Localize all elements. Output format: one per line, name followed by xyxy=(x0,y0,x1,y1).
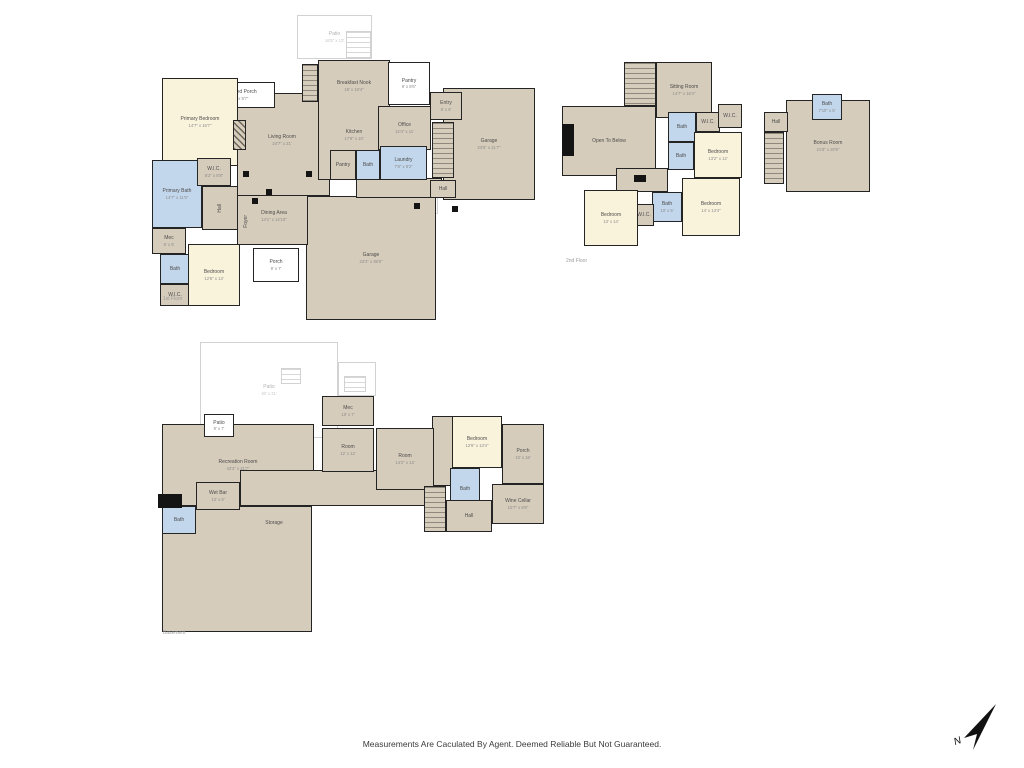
room-dimensions: 9' x 7' xyxy=(214,426,225,431)
room-hall: Hall xyxy=(446,500,492,532)
room-dimensions: 24'7" x 21' xyxy=(272,141,291,146)
room-dimensions: 17'6" x 10' xyxy=(344,136,363,141)
room-pantry: Pantry9' x 8'6" xyxy=(388,62,430,105)
room-dimensions: 14' x 13'4" xyxy=(701,208,720,213)
room-label: Bath xyxy=(460,486,470,492)
room-dimensions: 6' x 5' xyxy=(164,242,175,247)
room-dimensions: 13'2" x 12' xyxy=(708,156,727,161)
room-bath: Bath10' x 5' xyxy=(652,192,682,222)
room-open-to-below: Open To Below xyxy=(562,106,656,176)
room-w-i-c: W.I.C.6'2" x 5'8" xyxy=(197,158,231,186)
room-dimensions: 23'6" x 21'7" xyxy=(478,145,501,150)
room-porch: Porch9' x 7' xyxy=(253,248,299,282)
room-label: Foyer xyxy=(243,215,249,228)
solid-element xyxy=(414,203,420,209)
room-dimensions: 14'7" x 16'7" xyxy=(189,123,212,128)
room-bath: Bath xyxy=(356,150,380,180)
room-bath: Bath xyxy=(668,112,696,142)
stairs-element xyxy=(432,122,454,178)
room-porch: Porch10' x 16' xyxy=(502,424,544,484)
room-dimensions: 6'2" x 5'8" xyxy=(205,173,223,178)
room-bath: Bath xyxy=(162,506,196,534)
room-storage: Storage xyxy=(244,516,304,530)
room-patio: Patio9' x 7' xyxy=(204,414,234,437)
room-bath: Bath7'10" x 5' xyxy=(812,94,842,120)
room-dimensions: 6' x 6' xyxy=(441,107,452,112)
room-dimensions: 9' x 7' xyxy=(271,266,282,271)
room-bedroom: Bedroom12'6" x 13' xyxy=(188,244,240,306)
room-w-i-c: W.I.C. xyxy=(160,284,190,306)
outline-stairs-element xyxy=(344,376,366,392)
room-bath: Bath xyxy=(160,254,190,284)
stairs-element xyxy=(302,64,318,102)
room-label: Bath xyxy=(170,266,180,272)
room-label: W.I.C. xyxy=(723,113,737,119)
room-dimensions: 10' x 7' xyxy=(341,412,354,417)
room-living-room: Living Room24'7" x 21' xyxy=(247,130,317,150)
room-label: Storage xyxy=(265,520,283,526)
room-foyer: Foyer xyxy=(240,198,253,244)
room-dimensions: 7'8" x 9'2" xyxy=(394,164,412,169)
solid-element xyxy=(243,171,249,177)
room-entry: Entry6' x 6' xyxy=(430,92,462,120)
room-hall: Hall xyxy=(202,186,238,230)
room-dimensions: 14'1" x 14'10" xyxy=(261,217,286,222)
room-dimensions: 10'7" x 8'6" xyxy=(508,505,529,510)
room-sitting-room: Sitting Room14'7" x 16'4" xyxy=(656,62,712,118)
room-dimensions: 14'2" x 13' xyxy=(395,460,414,465)
room-dimensions: 16'5" x 13' xyxy=(325,38,344,43)
room-label: Bath xyxy=(174,517,184,523)
room-hall: Hall xyxy=(764,112,788,132)
room-dimensions: 12' x 12' xyxy=(340,451,355,456)
disclaimer-text: Measurements Are Caculated By Agent. Dee… xyxy=(0,739,1024,749)
room-hall: Hall xyxy=(430,180,456,198)
room-dimensions: 7'10" x 5' xyxy=(819,108,836,113)
room-w-i-c: W.I.C. xyxy=(696,112,720,132)
room-wet-bar: Wet Bar12' x 8' xyxy=(196,482,240,510)
room-mec: Mec6' x 5' xyxy=(152,228,186,254)
north-arrow-icon xyxy=(952,700,1012,756)
room-bath: Bath xyxy=(668,142,694,170)
room-dimensions: 9' x 8'6" xyxy=(402,84,417,89)
room-dimensions: 10' x 16' xyxy=(515,455,530,460)
room-label: Bath xyxy=(676,153,686,159)
room-dimensions: 14'7" x 16'4" xyxy=(673,91,696,96)
room-label: Bath xyxy=(677,124,687,130)
room-wine-cellar: Wine Cellar10'7" x 8'6" xyxy=(492,484,544,524)
room-bedroom: Bedroom13' x 14' xyxy=(584,190,638,246)
stairs-element xyxy=(424,486,446,532)
solid-element xyxy=(562,124,574,156)
solid-element xyxy=(306,171,312,177)
room-dimensions: 13' x 14' xyxy=(603,219,618,224)
solid-element xyxy=(252,198,258,204)
stairs-element xyxy=(764,132,784,184)
room-dimensions: 16' x 10'4" xyxy=(344,87,363,92)
solid-element xyxy=(158,494,182,508)
room-dimensions: 23'4" x 35'6" xyxy=(360,259,383,264)
room-primary-bath: Primary Bath14'7" x 11'5" xyxy=(152,160,202,228)
room-label: W.I.C. xyxy=(701,119,715,125)
room-dimensions: 14'7" x 11'5" xyxy=(166,195,189,200)
room-label: W.I.C. xyxy=(637,212,651,218)
solid-element xyxy=(634,175,646,182)
room-label: Hall xyxy=(772,119,781,125)
second-floor-caption: 2nd Floor xyxy=(566,258,587,264)
room-label: Pantry xyxy=(336,162,350,168)
room-dimensions: 12'6" x 13' xyxy=(204,276,223,281)
room-label: Hall xyxy=(217,204,223,213)
room-pantry: Pantry xyxy=(330,150,356,180)
room-label: Open To Below xyxy=(592,138,626,144)
room-dimensions: 12' x 8' xyxy=(211,497,224,502)
room-w-i-c: W.I.C. xyxy=(718,104,742,128)
solid-element xyxy=(266,189,272,195)
room-dimensions: 40' x 21' xyxy=(261,391,276,396)
solid-element xyxy=(452,206,458,212)
room-dimensions: 12'4" x 11' xyxy=(395,129,414,134)
room-label: Hall xyxy=(439,186,448,192)
room-dimensions: 12'6" x 13'4" xyxy=(466,443,489,448)
room-bedroom: Bedroom14' x 13'4" xyxy=(682,178,740,236)
north-compass: N xyxy=(952,700,1012,756)
room-dimensions: 10' x 5' xyxy=(660,208,673,213)
room-room: Room12' x 12' xyxy=(322,428,374,472)
hatch-element xyxy=(233,120,246,150)
basement-caption: Basement xyxy=(163,630,186,636)
room-laundry: Laundry7'8" x 9'2" xyxy=(380,146,427,180)
room-bedroom: Bedroom12'6" x 13'4" xyxy=(452,416,502,468)
room-kitchen: Kitchen17'6" x 10' xyxy=(322,126,386,144)
room-label: Bath xyxy=(363,162,373,168)
room-bedroom: Bedroom13'2" x 12' xyxy=(694,132,742,178)
room-breakfast-nook: Breakfast Nook16' x 10'4" xyxy=(322,76,386,96)
room-dimensions: 21'6" x 20'5" xyxy=(817,147,840,152)
room-room: Room14'2" x 13' xyxy=(376,428,434,490)
room-mec: Mec10' x 7' xyxy=(322,396,374,426)
outline-stairs-element xyxy=(346,31,371,58)
room-label: Hall xyxy=(465,513,474,519)
stairs-element xyxy=(624,62,656,106)
room-garage: Garage23'4" x 35'6" xyxy=(306,196,436,320)
first-floor-caption: 1st Floor xyxy=(163,296,182,302)
outline-stairs-element xyxy=(281,368,301,384)
room-primary-bedroom: Primary Bedroom14'7" x 16'7" xyxy=(162,78,238,166)
